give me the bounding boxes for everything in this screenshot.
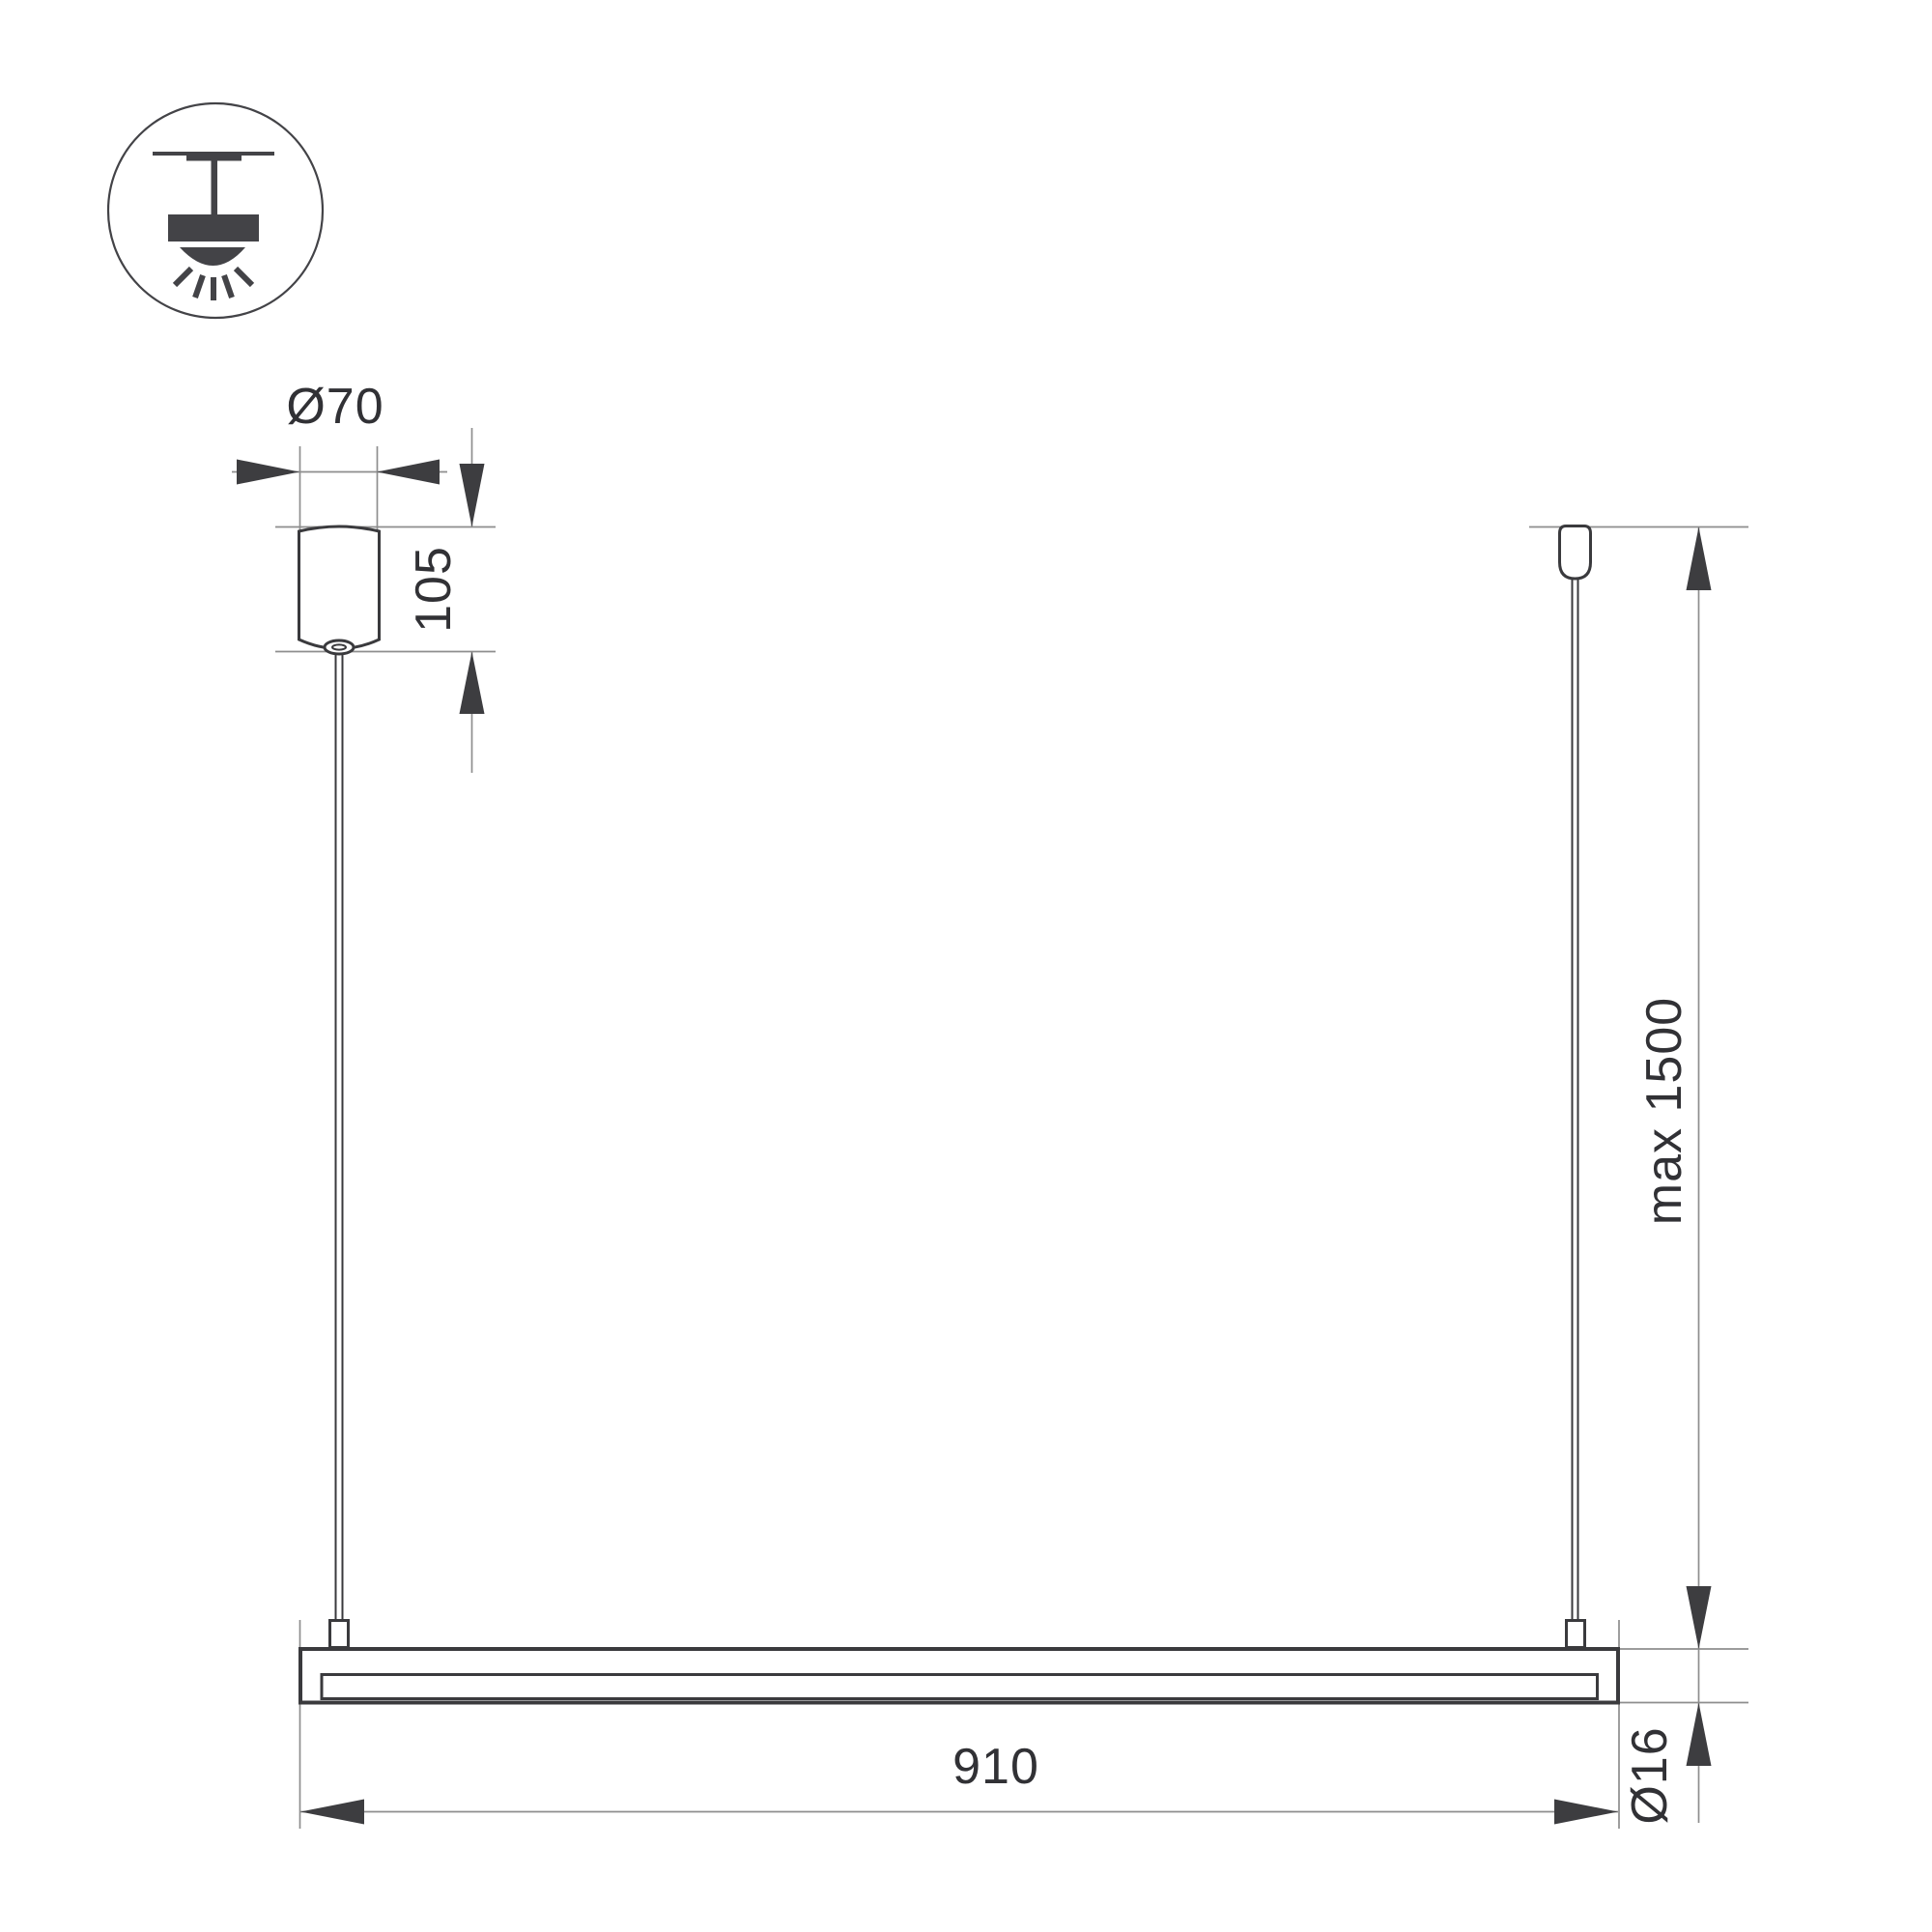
technical-drawing: Ø70 105 max 1500 910 Ø16	[0, 0, 1932, 1932]
icon-lamp-dome	[180, 247, 245, 266]
canopy-wire-gland	[325, 640, 354, 654]
arrow-fixture-length-right	[1554, 1800, 1618, 1825]
dim-label-canopy-height: 105	[406, 546, 462, 633]
suspension-wire-right	[1573, 578, 1578, 1620]
icon-lamp-body	[168, 214, 259, 241]
arrow-fixture-length-left	[300, 1800, 364, 1825]
wire-connector-right	[1567, 1621, 1585, 1648]
arrow-canopy-diameter-left	[237, 460, 299, 485]
dim-label-fixture-length: 910	[952, 1739, 1039, 1795]
canopy-cylinder	[299, 526, 380, 649]
dimension-lines	[232, 428, 1748, 1829]
dim-label-tube-diameter: Ø16	[1622, 1726, 1678, 1824]
arrow-canopy-diameter-right	[377, 460, 440, 485]
arrow-suspension-bottom	[1687, 1586, 1712, 1649]
wire-gripper	[1560, 526, 1591, 580]
arrow-canopy-height-top	[460, 464, 485, 527]
arrow-tube-diameter-bottom	[1687, 1703, 1712, 1767]
dimension-labels: Ø70 105 max 1500 910 Ø16	[286, 379, 1692, 1825]
wire-connector-left	[330, 1621, 349, 1648]
suspension-wire-left	[336, 654, 343, 1620]
icon-light-rays	[175, 269, 252, 300]
dimension-arrows	[237, 460, 1712, 1825]
pendant-fixture	[299, 526, 1619, 1703]
icon-mount-plate	[186, 156, 241, 161]
dim-label-canopy-diameter: Ø70	[286, 379, 384, 435]
drawing-canvas: Ø70 105 max 1500 910 Ø16	[0, 0, 1932, 1932]
arrow-suspension-top	[1687, 527, 1712, 591]
dim-label-suspension-max: max 1500	[1636, 997, 1692, 1225]
arrow-canopy-height-bottom	[460, 652, 485, 715]
ceiling-pendant-icon	[108, 103, 323, 318]
icon-stem	[212, 160, 218, 215]
